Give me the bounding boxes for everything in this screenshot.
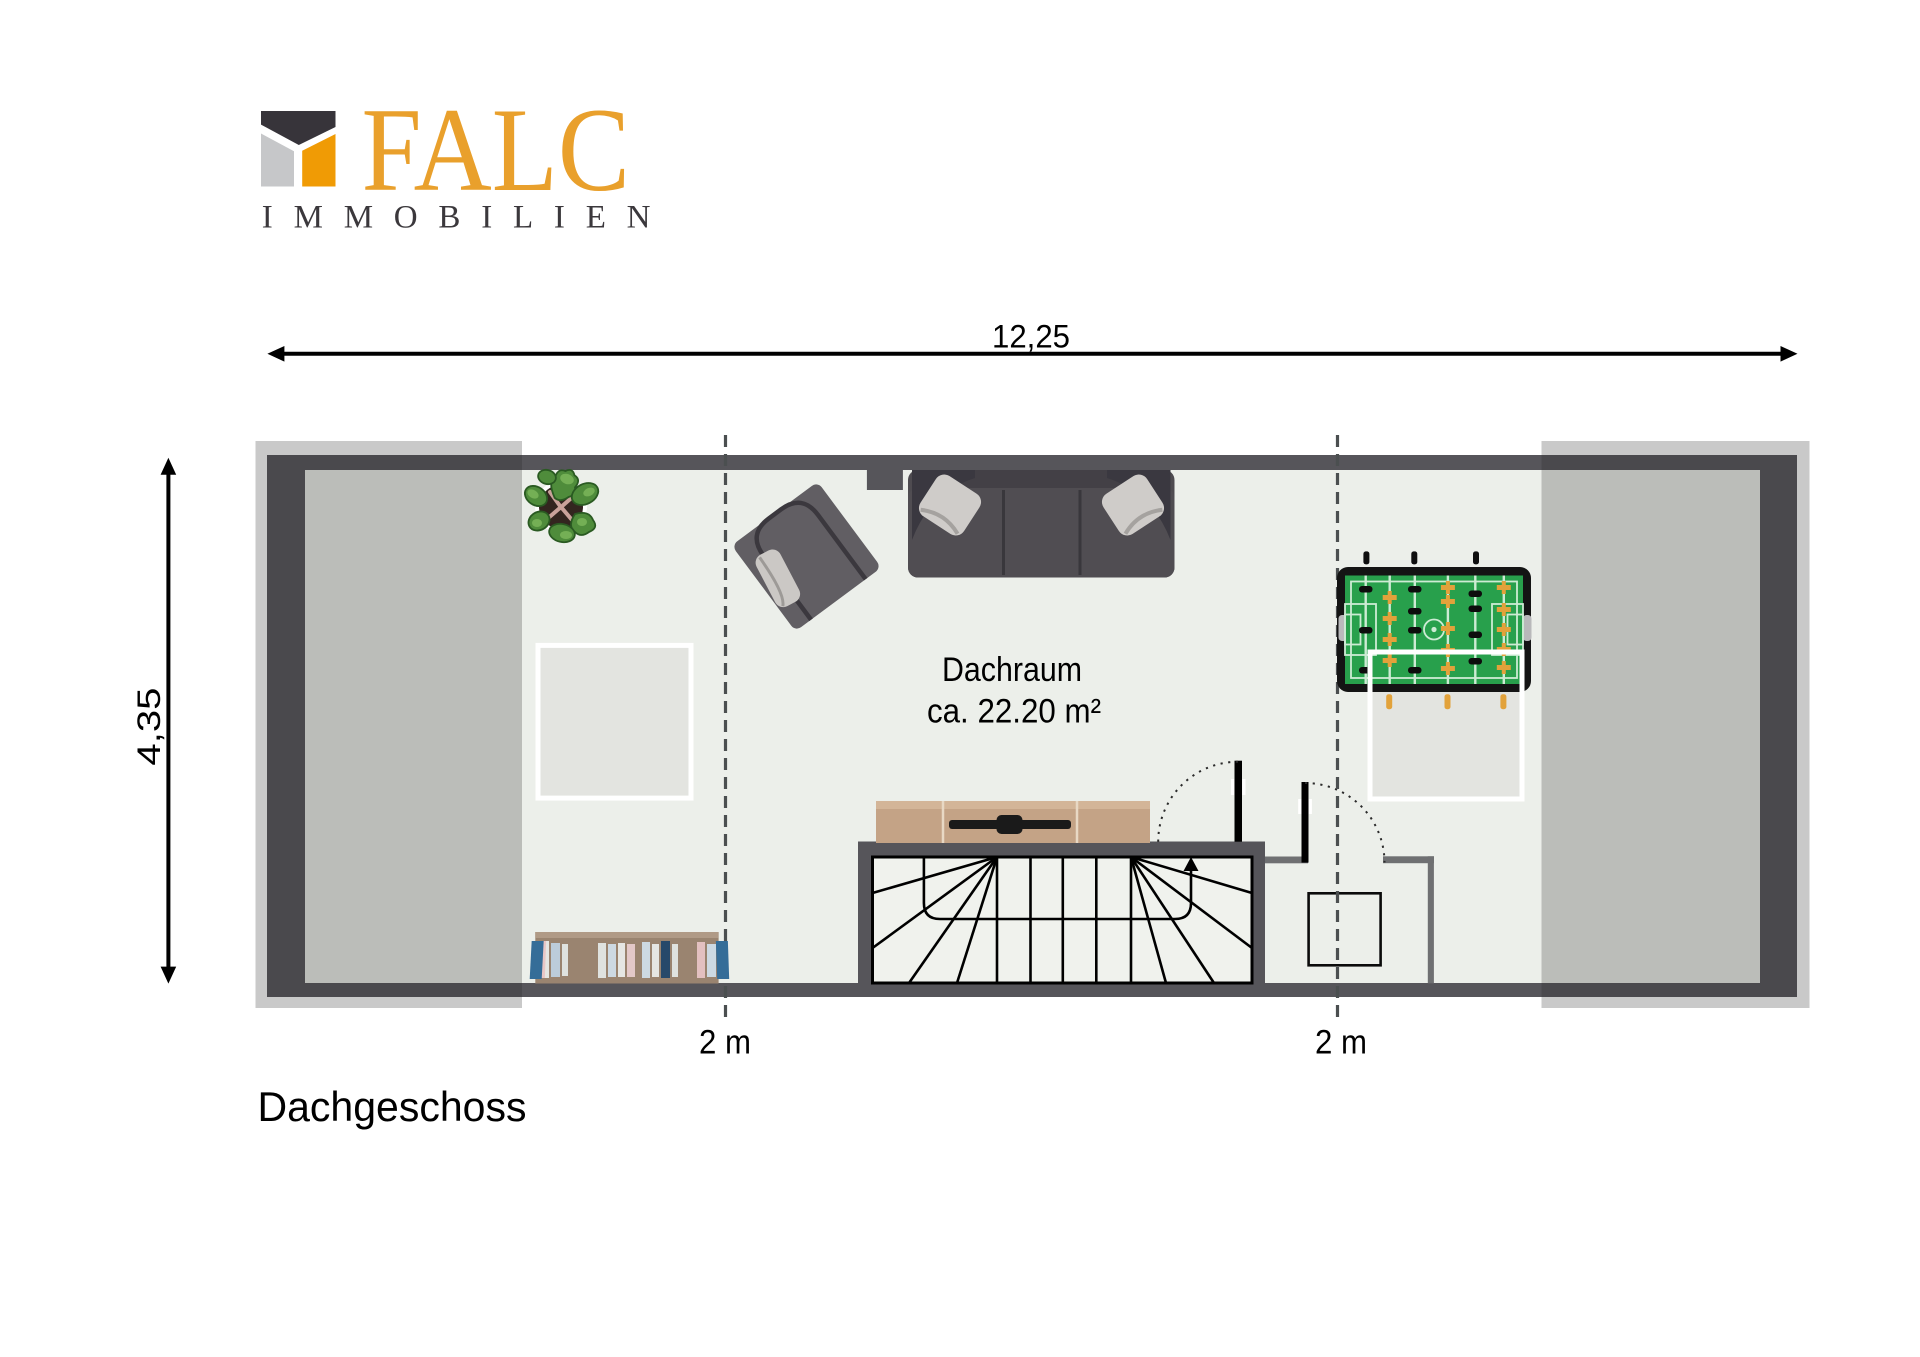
svg-text:2 m: 2 m (699, 1023, 751, 1061)
svg-text:4,35: 4,35 (131, 688, 167, 766)
svg-text:IMMOBILIEN: IMMOBILIEN (262, 200, 651, 236)
svg-text:2 m: 2 m (1315, 1023, 1367, 1061)
svg-text:Dachraum: Dachraum (942, 651, 1082, 689)
svg-text:FALC: FALC (362, 83, 631, 216)
svg-text:Dachgeschoss: Dachgeschoss (258, 1083, 527, 1130)
svg-text:ca. 22.20 m²: ca. 22.20 m² (927, 693, 1101, 731)
svg-text:12,25: 12,25 (992, 319, 1070, 355)
